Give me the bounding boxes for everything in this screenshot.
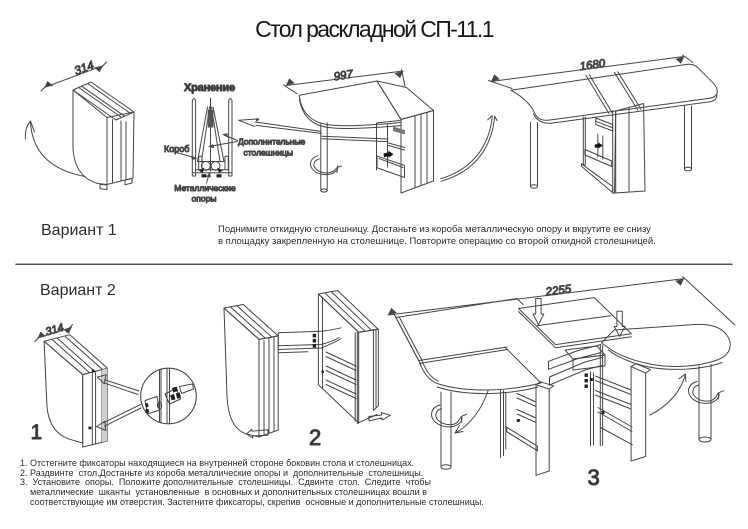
svg-text:2: 2 xyxy=(309,425,321,450)
svg-text:Дополнительные: Дополнительные xyxy=(238,137,306,147)
svg-text:2255: 2255 xyxy=(544,283,573,298)
svg-text:3: 3 xyxy=(588,465,600,490)
svg-text:Металлические: Металлические xyxy=(174,183,236,193)
svg-text:314: 314 xyxy=(44,322,65,339)
svg-text:столешницы: столешницы xyxy=(244,148,294,158)
svg-text:Хранение: Хранение xyxy=(184,82,235,94)
svg-text:опоры: опоры xyxy=(192,194,217,204)
svg-text:314: 314 xyxy=(72,58,96,78)
svg-text:1680: 1680 xyxy=(579,58,607,74)
svg-text:997: 997 xyxy=(333,69,354,84)
svg-text:1: 1 xyxy=(31,421,43,444)
